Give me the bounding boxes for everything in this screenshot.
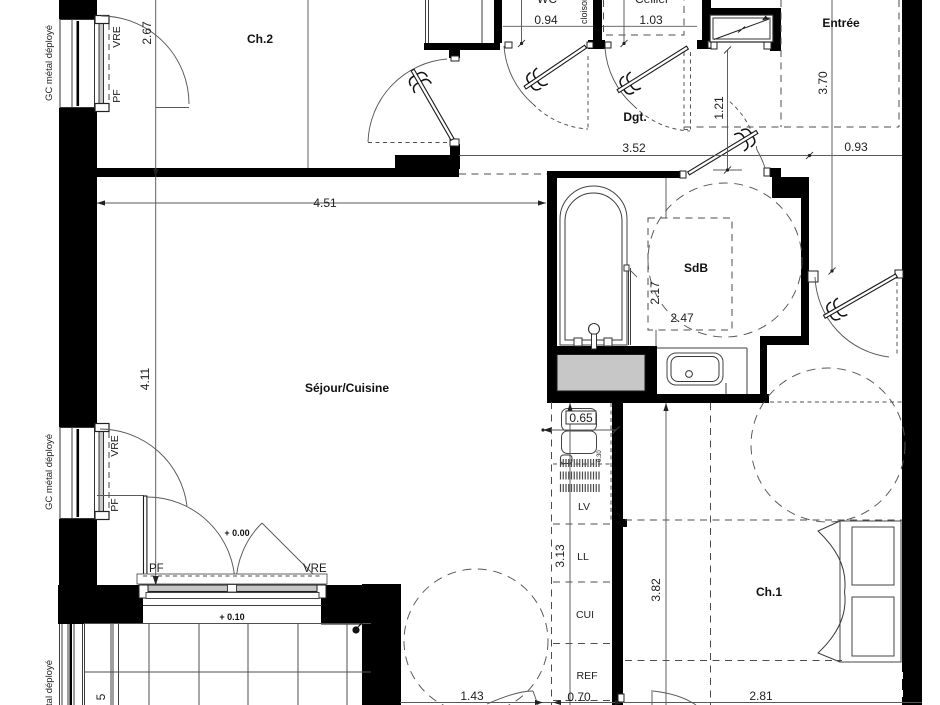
svg-text:4.51: 4.51 [313,196,337,210]
svg-text:3.13: 3.13 [553,544,567,568]
svg-text:2.81: 2.81 [749,689,773,703]
svg-text:Ch.1: Ch.1 [756,585,782,599]
svg-text:1.03: 1.03 [639,13,663,27]
svg-text:PF: PF [149,563,164,575]
svg-text:0.93: 0.93 [844,140,868,154]
svg-text:4.11: 4.11 [138,367,152,390]
svg-text:REF: REF [577,670,598,682]
svg-text:0.70: 0.70 [567,690,591,704]
svg-text:GC métal déployé: GC métal déployé [44,660,55,705]
svg-text:Cellier: Cellier [635,0,669,6]
svg-text:2.17: 2.17 [648,281,662,305]
svg-text:GC métal déployé: GC métal déployé [44,25,55,101]
svg-text:+ 0.10: + 0.10 [219,612,244,622]
svg-text:1.43: 1.43 [460,689,484,703]
svg-text:Entrée: Entrée [822,16,860,30]
svg-text:0.65: 0.65 [569,411,593,425]
svg-text:5: 5 [94,693,108,700]
svg-text:2.47: 2.47 [670,311,694,325]
svg-text:LL: LL [577,551,589,563]
svg-text:CUI: CUI [576,609,594,621]
svg-text:LV: LV [578,501,590,513]
svg-text:3.82: 3.82 [649,578,663,602]
svg-text:0.94: 0.94 [534,13,558,27]
svg-text:SdB: SdB [684,261,708,275]
svg-text:Séjour/Cuisine: Séjour/Cuisine [305,381,389,395]
svg-text:VRE: VRE [111,26,123,48]
svg-text:3.52: 3.52 [622,141,646,155]
svg-text:GC métal déployé: GC métal déployé [44,434,55,510]
svg-text:VRE: VRE [303,563,327,575]
svg-text:VRE: VRE [109,435,121,457]
svg-text:2.67: 2.67 [140,21,154,45]
svg-text:Dgt.: Dgt. [623,110,646,124]
svg-text:0.30: 0.30 [597,450,603,462]
svg-text:Ch.2: Ch.2 [247,32,273,46]
svg-text:WC: WC [537,0,557,6]
svg-text:PF: PF [111,89,123,102]
svg-text:cloison: cloison [579,0,589,24]
svg-text:3.70: 3.70 [816,71,830,95]
svg-text:+ 0.00: + 0.00 [224,528,249,538]
svg-text:PF: PF [109,498,121,511]
svg-text:1.21: 1.21 [712,96,726,120]
